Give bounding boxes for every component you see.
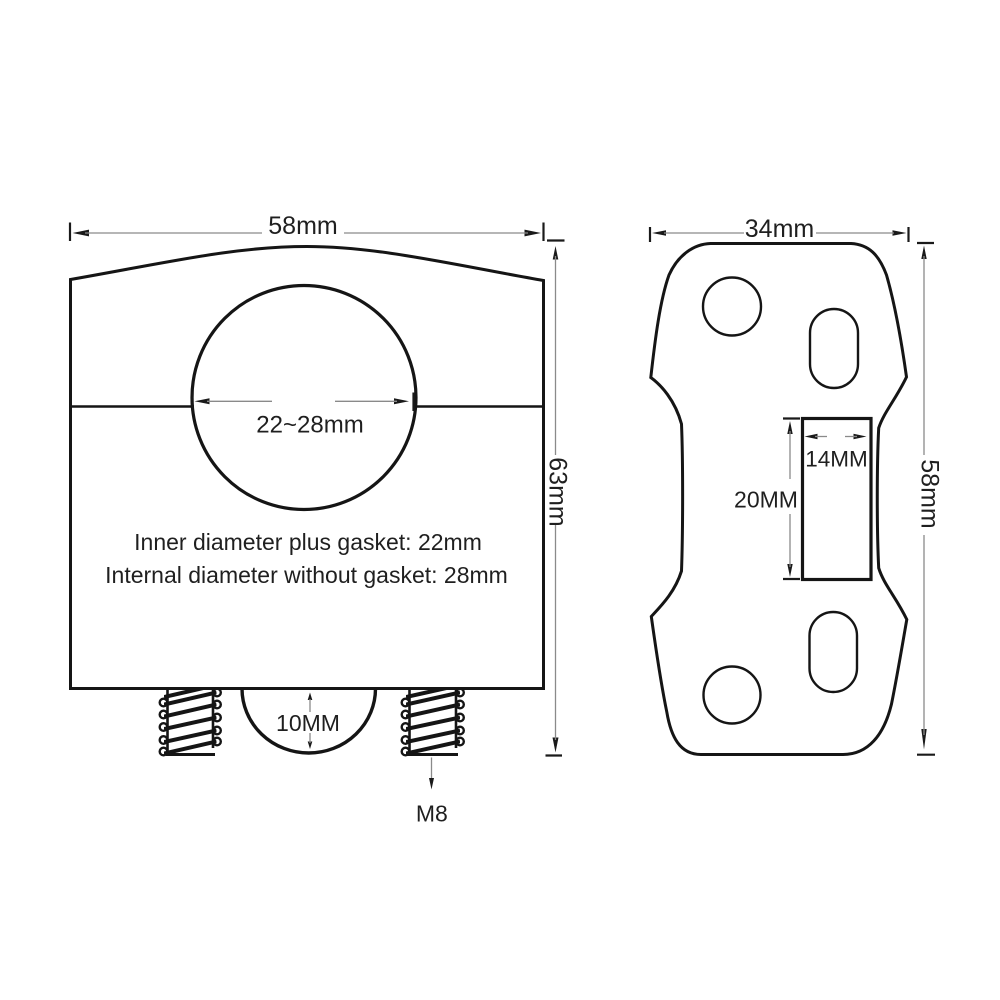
svg-text:M8: M8 — [416, 801, 448, 827]
svg-text:Inner diameter plus gasket: 22: Inner diameter plus gasket: 22mm — [134, 529, 482, 555]
svg-text:Internal diameter without gask: Internal diameter without gasket: 28mm — [105, 562, 508, 588]
svg-text:22~28mm: 22~28mm — [256, 412, 363, 439]
svg-text:58mm: 58mm — [915, 459, 943, 528]
svg-text:63mm: 63mm — [544, 457, 572, 526]
svg-text:14MM: 14MM — [805, 447, 868, 472]
svg-text:20MM: 20MM — [734, 487, 798, 513]
svg-text:58mm: 58mm — [268, 212, 337, 240]
svg-text:10MM: 10MM — [276, 710, 340, 736]
svg-text:34mm: 34mm — [745, 215, 814, 243]
